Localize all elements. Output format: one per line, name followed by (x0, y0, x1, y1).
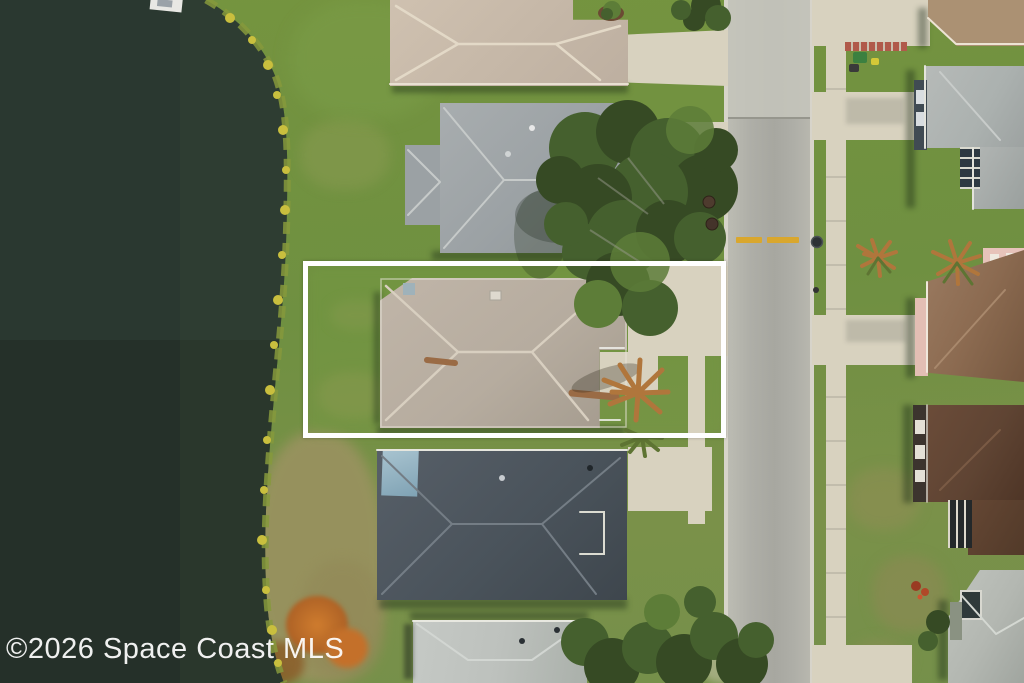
house-g-roof (925, 66, 1024, 148)
house-h-side-wall (915, 298, 928, 376)
house-i-roof (927, 405, 1024, 502)
house-d-blue-tarp (381, 449, 419, 496)
house-i-roof-rear (968, 500, 1024, 555)
street-joint (728, 117, 812, 119)
house-i-bay-windows (948, 500, 972, 548)
house-e-shadow (410, 612, 588, 620)
yellow-lane-dash (767, 237, 799, 243)
house-i-window (915, 445, 925, 459)
house-j-bay-window (960, 590, 982, 620)
dark-yard-item (849, 64, 859, 72)
house-h-shadow (906, 298, 915, 378)
house-i-shadow (903, 405, 913, 503)
house-j-wall (950, 602, 962, 640)
yellow-lane-dash (736, 237, 762, 243)
red-paver-strip (845, 42, 907, 51)
worn-grass-patch (300, 120, 390, 190)
aerial-photo: ©2026 Space Coast MLS (0, 0, 1024, 683)
driveway-shadow (846, 320, 906, 342)
property-highlight-rectangle (303, 261, 726, 438)
house-g-window (916, 90, 925, 104)
house-i-window (915, 470, 925, 482)
house-g-roof-rear (973, 147, 1024, 209)
house-e-roof (413, 620, 587, 683)
driveway-house-a (628, 30, 728, 86)
street-new-concrete (728, 0, 812, 118)
house-b-roof (440, 103, 628, 253)
house-g-window (916, 112, 925, 126)
yellow-yard-item (871, 58, 879, 65)
house-f-shadow (918, 8, 927, 48)
vehicle (639, 122, 674, 139)
house-g-bay-windows (960, 147, 980, 189)
house-e-wall-shadow (404, 624, 413, 679)
driveway-house-d (628, 447, 712, 511)
driveway-house-f (812, 0, 930, 46)
mls-watermark: ©2026 Space Coast MLS (6, 633, 344, 666)
driveway-shadow (846, 98, 904, 124)
driveway-house-j (812, 645, 912, 683)
dry-grass-patch (872, 556, 946, 632)
house-i-window (915, 420, 925, 434)
house-j-shadow (938, 600, 948, 680)
green-trash-bin (853, 52, 867, 63)
